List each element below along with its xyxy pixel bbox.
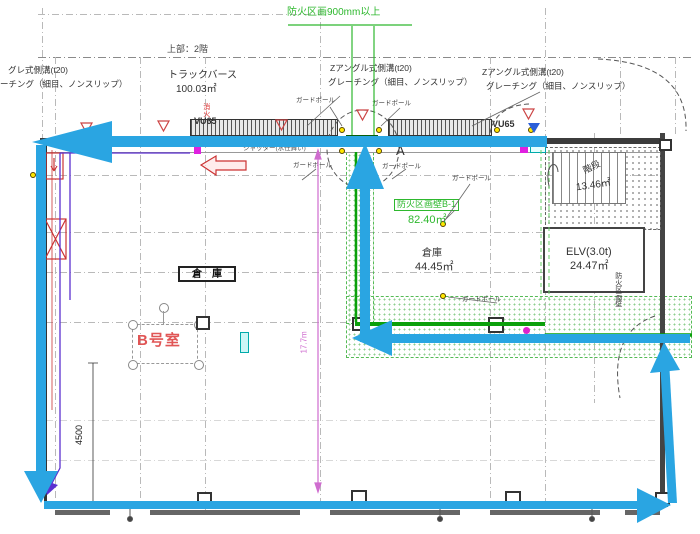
vu65-label: VU65 (194, 117, 217, 127)
dim-17-7m: 17.7m (301, 331, 310, 353)
guard-pole-label: ガードポール (296, 97, 335, 104)
column (488, 317, 504, 333)
fire-equipment-label: 消火 (202, 103, 210, 117)
elevator-name: ELV(3.0t) (566, 246, 612, 258)
column (659, 139, 672, 151)
wall-bottom-seg (490, 510, 600, 515)
grid-line (55, 57, 56, 506)
grid-line (46, 232, 543, 233)
equipment-chip-cyan (240, 332, 249, 353)
red-direction-arrow (201, 156, 246, 175)
wall-bottom-seg (625, 510, 660, 515)
marker-dot-green (155, 140, 161, 146)
guard-pole-dot (30, 172, 36, 178)
guard-pole-label: ガードポール (382, 163, 421, 170)
column (197, 492, 212, 505)
grid-line (38, 14, 322, 15)
wall-bottom-seg (150, 510, 300, 515)
storage-label: 倉 庫 (192, 269, 222, 280)
room-b-handle (128, 360, 138, 370)
point-a-label: A (396, 144, 405, 158)
wall-bottom-seg (55, 510, 110, 515)
guard-pole-label: ガードポール (452, 175, 491, 182)
room-b-handle (159, 303, 169, 313)
gutter-left-line1: グレ式側溝(t20) (8, 66, 68, 75)
truck-berth-area: 100.03㎡ (176, 84, 217, 95)
wall-bottom-seg (330, 510, 460, 515)
gutter-center-line2: グレーチング（細目、ノンスリップ） (328, 78, 472, 87)
column (196, 316, 210, 330)
grid-line (46, 420, 658, 421)
fire-zone-width-note: 防火区画900mm以上 (287, 7, 380, 18)
guard-pole-dot (339, 127, 345, 133)
marker-dot-magenta (523, 327, 530, 334)
room-b-handle-stem (163, 311, 164, 324)
column (352, 317, 366, 331)
guard-pole-dot (376, 148, 382, 154)
vu65-label: VU65 (492, 120, 515, 130)
guard-pole-label: ガードポール (372, 100, 411, 107)
equipment-chip-cyan (530, 143, 546, 153)
column (505, 491, 521, 505)
fire-zone-hatch-horizontal (346, 296, 692, 358)
grid-line (620, 57, 621, 137)
wall-bottom-line (46, 506, 668, 507)
pipe-run-purple (50, 153, 190, 487)
column (655, 492, 670, 505)
fire-shutter (346, 135, 378, 144)
grating-right (388, 119, 492, 136)
fire-partition-label: 防火区画壁B-1 (394, 199, 459, 211)
storage-label-box: 倉 庫 (178, 266, 236, 282)
upper-floor-note: 上部：2階 (167, 45, 208, 55)
guard-pole-label: ガードポール (293, 162, 332, 169)
equipment-chip-magenta (194, 144, 201, 154)
guard-pole-dot (376, 127, 382, 133)
fire-partition-area: 82.40㎡ (408, 214, 447, 226)
column (351, 490, 367, 504)
dim-4500: 4500 (75, 425, 85, 445)
warehouse-area: 44.45㎡ (415, 261, 454, 273)
route-arrow-left-head-down (24, 471, 58, 503)
room-b-handle (194, 360, 204, 370)
equipment-chip-magenta (520, 143, 528, 153)
gutter-right-line2: グレーチング（細目、ノンスリップ） (486, 82, 630, 91)
gutter-right-line1: Zアングル式側溝(t20) (482, 68, 564, 77)
guard-pole-dot (339, 148, 345, 154)
route-arrow-bottom-shaft (44, 501, 640, 509)
guard-pole-dot (528, 127, 534, 133)
guard-pole-label: ガードポール (462, 296, 501, 303)
boundary-line-top (38, 57, 692, 58)
grid-line (46, 272, 543, 273)
truck-berth-name: トラックバース (168, 70, 237, 81)
fire-partition-wall-label: 防火区画壁 (614, 272, 622, 307)
wall-left (44, 140, 47, 506)
grid-line (46, 460, 658, 461)
stair-treads (552, 152, 626, 204)
floor-plan-canvas: 倉 庫 B号室 防火区画900mm以上 上部：2階 グレ式側溝(t20) ーチン… (0, 0, 700, 534)
gutter-left-line2: ーチング（細目、ノンスリップ） (0, 80, 127, 89)
warehouse-name: 倉庫 (422, 248, 442, 259)
guard-pole-dot (440, 293, 446, 299)
gutter-center-line1: Zアングル式側溝(t20) (330, 64, 412, 73)
elevator-area: 24.47㎡ (570, 260, 609, 272)
room-b-label: B号室 (137, 333, 181, 350)
grid-line (320, 8, 321, 510)
room-b-handle (128, 320, 138, 330)
shutter-note: シャッター(水仕舞い) (243, 145, 306, 152)
grid-line (140, 57, 141, 506)
grid-line (675, 57, 676, 135)
